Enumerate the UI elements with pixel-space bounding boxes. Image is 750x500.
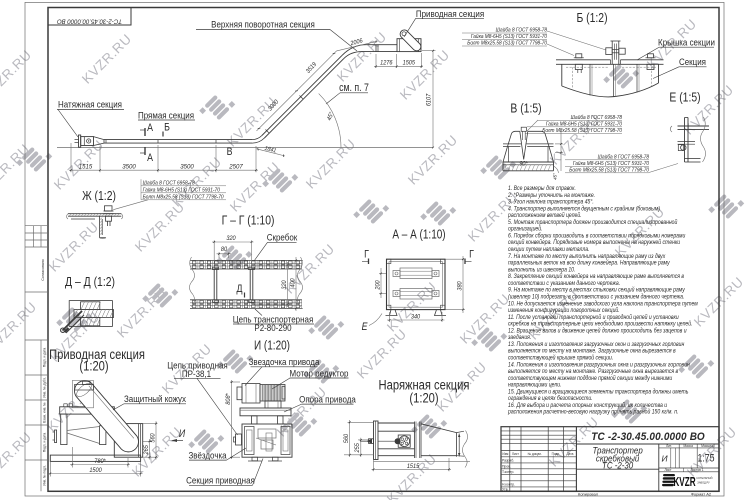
svg-text:90*: 90*: [519, 161, 528, 167]
svg-text:И: И: [179, 428, 186, 440]
svg-text:7. На монтаже по месту выполни: 7. На монтаже по месту выполнить направл…: [508, 253, 665, 259]
svg-text:Секция приводная: Секция приводная: [186, 475, 255, 486]
svg-text:5. Монтаж транспортера должен: 5. Монтаж транспортера должен производит…: [508, 219, 677, 227]
svg-text:выполняется по месту на монтаж: выполняется по месту на монтаже. Загрузо…: [508, 348, 676, 354]
svg-text:Ж (1:2): Ж (1:2): [82, 189, 116, 203]
svg-text:9. На монтаже по месту в места: 9. На монтаже по месту в местах стыковки…: [508, 286, 686, 294]
svg-text:Шайба 8 ГОСТ 6958-78: Шайба 8 ГОСТ 6958-78: [143, 179, 195, 187]
svg-text:6107: 6107: [426, 93, 432, 106]
svg-text:соответствии с указанием данно: соответствии с указанием данного чертежа…: [508, 281, 620, 287]
svg-text:Д – Д (1:2): Д – Д (1:2): [65, 275, 115, 289]
svg-text:ТС -2-30: ТС -2-30: [602, 460, 633, 471]
svg-text:Подп. и дата: Подп. и дата: [43, 348, 47, 368]
svg-text:Инв. № подл.: Инв. № подл.: [43, 465, 47, 486]
svg-text:ПР-38,1: ПР-38,1: [182, 368, 211, 379]
svg-text:Копировал: Копировал: [578, 492, 599, 497]
svg-text:Лит.: Лит.: [666, 444, 672, 448]
svg-text:1. Все размеры для справок.: 1. Все размеры для справок.: [508, 186, 576, 192]
svg-text:Гайка М8-6Н5 (S13) ГОСТ 5931: Гайка М8-6Н5 (S13) ГОСТ 5931-70: [143, 186, 220, 194]
svg-text:скребков на транспортерные цеп: скребков на транспортерные цепи необходи…: [508, 320, 692, 328]
svg-text:Подп. и дата: Подп. и дата: [43, 433, 47, 453]
svg-text:Шайба 8 ГОСТ 6958-78: Шайба 8 ГОСТ 6958-78: [571, 113, 622, 121]
svg-text:(1:20): (1:20): [79, 358, 108, 373]
svg-text:Гайка М8-6Н5 (S13) ГОСТ 5931: Гайка М8-6Н5 (S13) ГОСТ 5931-70: [573, 159, 649, 167]
svg-text:выполняется по месту на монтаж: выполняется по месту на монтаже. Разгруз…: [508, 369, 678, 375]
svg-text:расположением ветвей цепей.: расположением ветвей цепей.: [507, 212, 582, 220]
svg-text:1500: 1500: [89, 468, 102, 474]
svg-text:320: 320: [282, 280, 288, 290]
svg-text:Т.контр.: Т.контр.: [502, 470, 514, 474]
svg-text:Гайка М8-6Н5 (S13) ГОСТ 5931: Гайка М8-6Н5 (S13) ГОСТ 5931-70: [471, 33, 547, 41]
svg-text:Листов 1: Листов 1: [690, 468, 703, 472]
svg-text:Масса: Масса: [683, 444, 693, 448]
svg-text:Лист: Лист: [512, 452, 519, 456]
svg-text:А: А: [147, 122, 153, 134]
svg-text:265: 265: [144, 444, 150, 455]
svg-text:Крышка секции: Крышка секции: [658, 37, 715, 48]
svg-text:45°: 45°: [553, 173, 558, 180]
svg-text:16. Для выбора и расчета опорн: 16. Для выбора и расчета опорных констру…: [508, 402, 667, 410]
svg-text:ТС -2-30.45.00.0000 ВО: ТС -2-30.45.00.0000 ВО: [591, 430, 705, 443]
svg-text:200: 200: [375, 280, 381, 291]
svg-text:6. Порядок сборки производить: 6. Порядок сборки производить в соответс…: [508, 233, 685, 239]
svg-text:Пров.: Пров.: [502, 464, 511, 468]
svg-text:соответствующем нижнем поддоне: соответствующем нижнем поддоне прямой се…: [508, 374, 672, 382]
svg-text:Прямая секция: Прямая секция: [138, 110, 194, 121]
svg-text:12. Вращение валов и движение: 12. Вращение валов и движение цепей долж…: [508, 327, 687, 335]
svg-text:1276: 1276: [380, 60, 393, 66]
svg-text:Болт М8х25.58 (S13) ГОСТ 779: Болт М8х25.58 (S13) ГОСТ 7798-70: [467, 40, 547, 46]
svg-text:11. После установки транспорте: 11. После установки транспортерной и при…: [508, 313, 679, 321]
svg-text:И: И: [661, 454, 668, 464]
svg-text:8. Закрепление секций конвейер: 8. Закрепление секций конвейера на напра…: [508, 273, 684, 281]
svg-text:3500: 3500: [122, 163, 136, 170]
svg-text:№ докум.: № докум.: [528, 452, 542, 456]
svg-text:секции путем наплавки металла.: секции путем наплавки металла.: [508, 247, 589, 253]
svg-text:Болт М8х25.58 (S13) ГОСТ 779: Болт М8х25.58 (S13) ГОСТ 7798-70: [569, 167, 649, 173]
svg-text:Натяжная секция: Натяжная секция: [58, 99, 122, 110]
svg-text:Звёздочка: Звёздочка: [188, 450, 226, 461]
svg-text:400: 400: [290, 278, 296, 288]
svg-text:ограждения в целях безопасност: ограждения в целях безопасности.: [508, 396, 593, 402]
svg-text:1505: 1505: [403, 60, 416, 66]
svg-text:Формат А2: Формат А2: [691, 492, 712, 497]
svg-text:(швеллер 10) подрезать в соотв: (швеллер 10) подрезать в соответствии с …: [508, 294, 684, 300]
svg-text:Дата: Дата: [566, 452, 573, 456]
svg-text:Н.контр.: Н.контр.: [502, 482, 515, 486]
svg-text:780*: 780*: [94, 459, 106, 465]
svg-text:Д: Д: [237, 283, 243, 295]
svg-text:Мотор редуктор: Мотор редуктор: [290, 368, 349, 379]
svg-text:Утв.: Утв.: [502, 488, 509, 492]
svg-text:параллельных веток на всю длин: параллельных веток на всю длину конвейер…: [508, 259, 671, 267]
svg-text:Масштаб: Масштаб: [701, 444, 715, 448]
svg-text:А – А (1:10): А – А (1:10): [392, 229, 445, 242]
svg-text:(1:20): (1:20): [409, 390, 438, 405]
svg-text:Разраб.: Разраб.: [502, 458, 514, 462]
svg-text:Согласовано: Согласовано: [41, 259, 45, 281]
svg-text:340: 340: [411, 314, 421, 320]
svg-text:В (1:5): В (1:5): [510, 101, 541, 115]
svg-text:Гайка М8-6Н5 (S13) ГОСТ 5931: Гайка М8-6Н5 (S13) ГОСТ 5931-70: [546, 120, 622, 128]
svg-text:80: 80: [221, 247, 228, 253]
svg-text:Подп.: Подп.: [552, 452, 561, 456]
svg-text:соответствующей крышке прямой: соответствующей крышке прямой секции.: [508, 354, 613, 362]
svg-text:Опора привода: Опора привода: [299, 394, 356, 405]
svg-text:560: 560: [150, 433, 156, 443]
svg-text:изменения конфигурации поворот: изменения конфигурации поворотных секций…: [508, 307, 620, 315]
svg-text:В: В: [227, 146, 233, 158]
svg-text:направляющими цепи.: направляющими цепи.: [508, 382, 562, 388]
svg-text:3500: 3500: [180, 163, 194, 170]
svg-text:Секция: Секция: [679, 56, 706, 67]
svg-text:Болт М8х25.58 (S13) ГОСТ 779: Болт М8х25.58 (S13) ГОСТ 7798-70: [143, 194, 224, 200]
svg-text:расположения расчетно-весовую: расположения расчетно-весовую нагрузку п…: [507, 408, 678, 416]
svg-text:Б (1:2): Б (1:2): [576, 11, 607, 25]
svg-text:организацией.: организацией.: [508, 225, 542, 233]
svg-text:10. Не допускается изменение з: 10. Не допускается изменение заводского …: [508, 301, 698, 307]
svg-text:Взам. инв. №: Взам. инв. №: [43, 402, 47, 423]
svg-text:Е: Е: [362, 321, 368, 333]
svg-text:Изм: Изм: [502, 452, 508, 456]
svg-text:заедания.: заедания.: [507, 335, 531, 341]
svg-text:KVZR: KVZR: [673, 475, 695, 489]
svg-text:320: 320: [226, 236, 236, 242]
svg-text:Защитный кожух: Защитный кожух: [124, 393, 187, 404]
svg-text:выполнить из швеллера 10.: выполнить из швеллера 10.: [508, 267, 575, 273]
svg-text:Шайба 8 ГОСТ 6958-78: Шайба 8 ГОСТ 6958-78: [496, 26, 547, 34]
svg-text:2507: 2507: [228, 163, 243, 170]
svg-text:4. Транспортер выполняется дву: 4. Транспортер выполняется двущепным с к…: [508, 205, 660, 213]
svg-text:3. Угол наклона транспортера: 3. Угол наклона транспортера 45°.: [508, 199, 594, 205]
svg-text:А: А: [147, 152, 153, 164]
svg-text:секций конвейера. Порядковые н: секций конвейера. Порядковые номера выпо…: [508, 239, 680, 247]
svg-text:ЗАВОД.РУ: ЗАВОД.РУ: [697, 480, 710, 484]
svg-text:Е (1:5): Е (1:5): [669, 90, 700, 104]
svg-text:560: 560: [344, 433, 350, 443]
svg-text:2. *Размеры уточнить на монтаж: 2. *Размеры уточнить на монтаже.: [507, 192, 595, 198]
svg-text:Г – Г (1:10): Г – Г (1:10): [222, 213, 275, 227]
svg-text:Болт М8х25.58 (S13) ГОСТ 779: Болт М8х25.58 (S13) ГОСТ 7798-70: [542, 127, 622, 133]
svg-text:Лист: Лист: [665, 468, 672, 472]
svg-text:14. Положения и изготовления р: 14. Положения и изготовления разгрузочны…: [508, 362, 690, 368]
svg-text:Верхняя поворотная секция: Верхняя поворотная секция: [211, 19, 315, 30]
svg-text:255: 255: [355, 442, 361, 453]
svg-text:Инв. № дубл.: Инв. № дубл.: [43, 377, 47, 397]
svg-text:13. Положения и изготовления з: 13. Положения и изготовления загрузочных…: [508, 342, 684, 348]
svg-text:15. Движущиеся и вращающиеся э: 15. Движущиеся и вращающиеся элементы тр…: [508, 389, 688, 395]
svg-text:Шайба 8 ГОСТ 6958-78: Шайба 8 ГОСТ 6958-78: [598, 153, 649, 161]
svg-text:Звездочка привода: Звездочка привода: [249, 356, 320, 367]
svg-text:Б: Б: [164, 122, 170, 134]
svg-text:И (1:20): И (1:20): [254, 340, 290, 353]
svg-text:1515: 1515: [79, 163, 93, 170]
svg-text:Скребок: Скребок: [267, 232, 298, 243]
svg-text:380: 380: [457, 281, 463, 291]
svg-text:Г: Г: [469, 249, 474, 261]
svg-text:1:75: 1:75: [697, 453, 715, 465]
svg-text:ТС-2-30.45.00.0000 ВО: ТС-2-30.45.00.0000 ВО: [57, 17, 122, 24]
svg-text:1515: 1515: [407, 464, 420, 470]
svg-text:Приводная секция: Приводная секция: [416, 8, 485, 19]
svg-text:808*: 808*: [226, 393, 232, 405]
